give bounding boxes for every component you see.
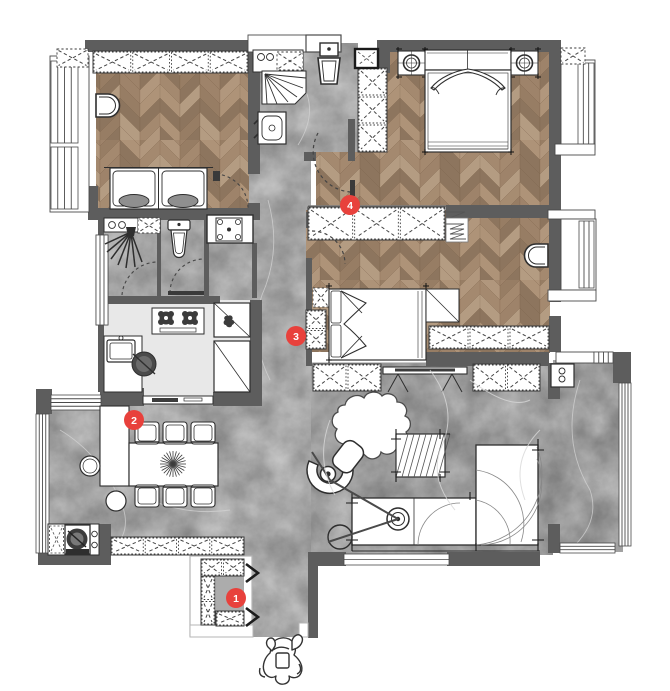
svg-text:4: 4: [347, 200, 353, 212]
svg-text:2: 2: [131, 415, 137, 427]
svg-text:1: 1: [233, 593, 239, 605]
svg-text:3: 3: [293, 331, 299, 343]
